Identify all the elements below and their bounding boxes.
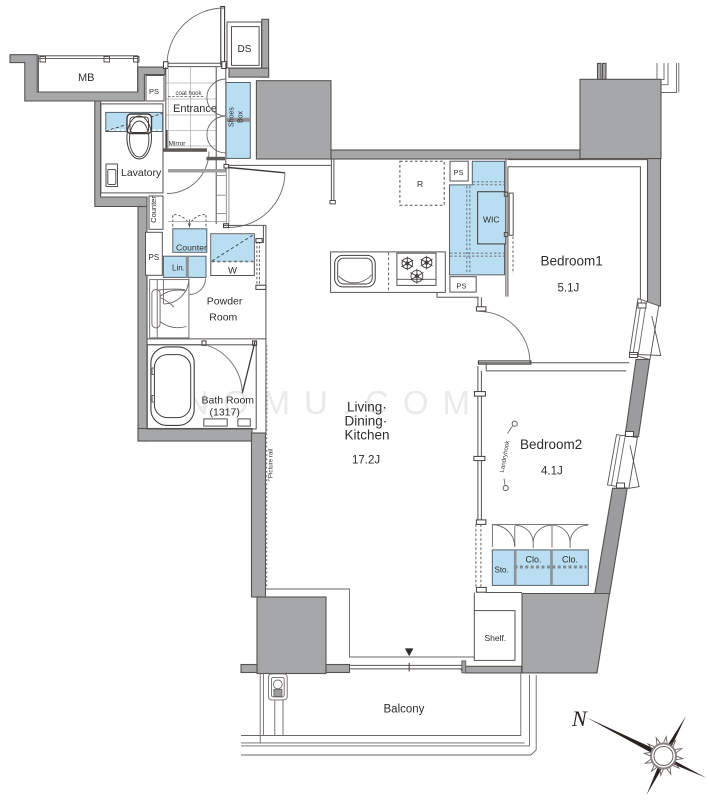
svg-text:Shoes: Shoes bbox=[229, 107, 236, 127]
svg-text:PS: PS bbox=[149, 87, 159, 96]
svg-text:Room: Room bbox=[209, 312, 237, 324]
svg-text:(1317): (1317) bbox=[210, 407, 240, 419]
svg-text:Balcony: Balcony bbox=[384, 704, 425, 716]
svg-text:PS: PS bbox=[149, 253, 160, 262]
svg-text:PS: PS bbox=[454, 168, 464, 177]
svg-text:Shelf.: Shelf. bbox=[485, 633, 507, 643]
svg-text:⌜Picture rail: ⌜Picture rail bbox=[268, 449, 275, 481]
svg-text:Clo.: Clo. bbox=[562, 555, 578, 565]
svg-text:Lavatory: Lavatory bbox=[121, 167, 162, 179]
svg-text:Counter: Counter bbox=[176, 243, 207, 253]
svg-text:Powder: Powder bbox=[207, 296, 243, 308]
svg-text:4.1J: 4.1J bbox=[541, 466, 563, 478]
svg-text:17.2J: 17.2J bbox=[352, 455, 380, 467]
svg-text:Bedroom2: Bedroom2 bbox=[520, 437, 582, 452]
svg-text:N: N bbox=[571, 706, 588, 731]
svg-text:WIC: WIC bbox=[483, 215, 500, 225]
svg-text:MB: MB bbox=[78, 72, 95, 84]
svg-text:Bedroom1: Bedroom1 bbox=[541, 254, 603, 269]
svg-text:Counter: Counter bbox=[149, 196, 158, 223]
svg-text:Bath Room: Bath Room bbox=[202, 395, 255, 407]
svg-text:Box: Box bbox=[238, 110, 245, 123]
svg-text:Living·: Living· bbox=[347, 400, 387, 415]
svg-text:R: R bbox=[417, 179, 423, 189]
svg-text:5.1J: 5.1J bbox=[558, 283, 580, 295]
svg-text:Lin.: Lin. bbox=[172, 264, 185, 273]
svg-text:Kitchen: Kitchen bbox=[345, 428, 390, 443]
svg-text:DS: DS bbox=[238, 44, 252, 55]
svg-text:Mirror: Mirror bbox=[169, 141, 187, 148]
svg-text:Sto.: Sto. bbox=[495, 566, 509, 575]
svg-text:Dining·: Dining· bbox=[345, 414, 388, 429]
svg-text:PS: PS bbox=[457, 282, 467, 291]
svg-text:Clo.: Clo. bbox=[526, 555, 542, 565]
svg-text:W: W bbox=[228, 266, 237, 277]
